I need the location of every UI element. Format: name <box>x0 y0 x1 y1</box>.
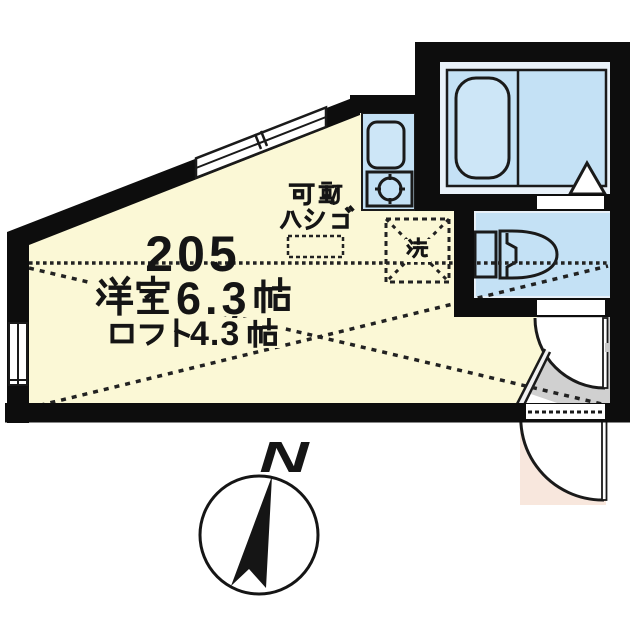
svg-text:4.3: 4.3 <box>190 315 240 353</box>
svg-text:N: N <box>259 433 310 482</box>
